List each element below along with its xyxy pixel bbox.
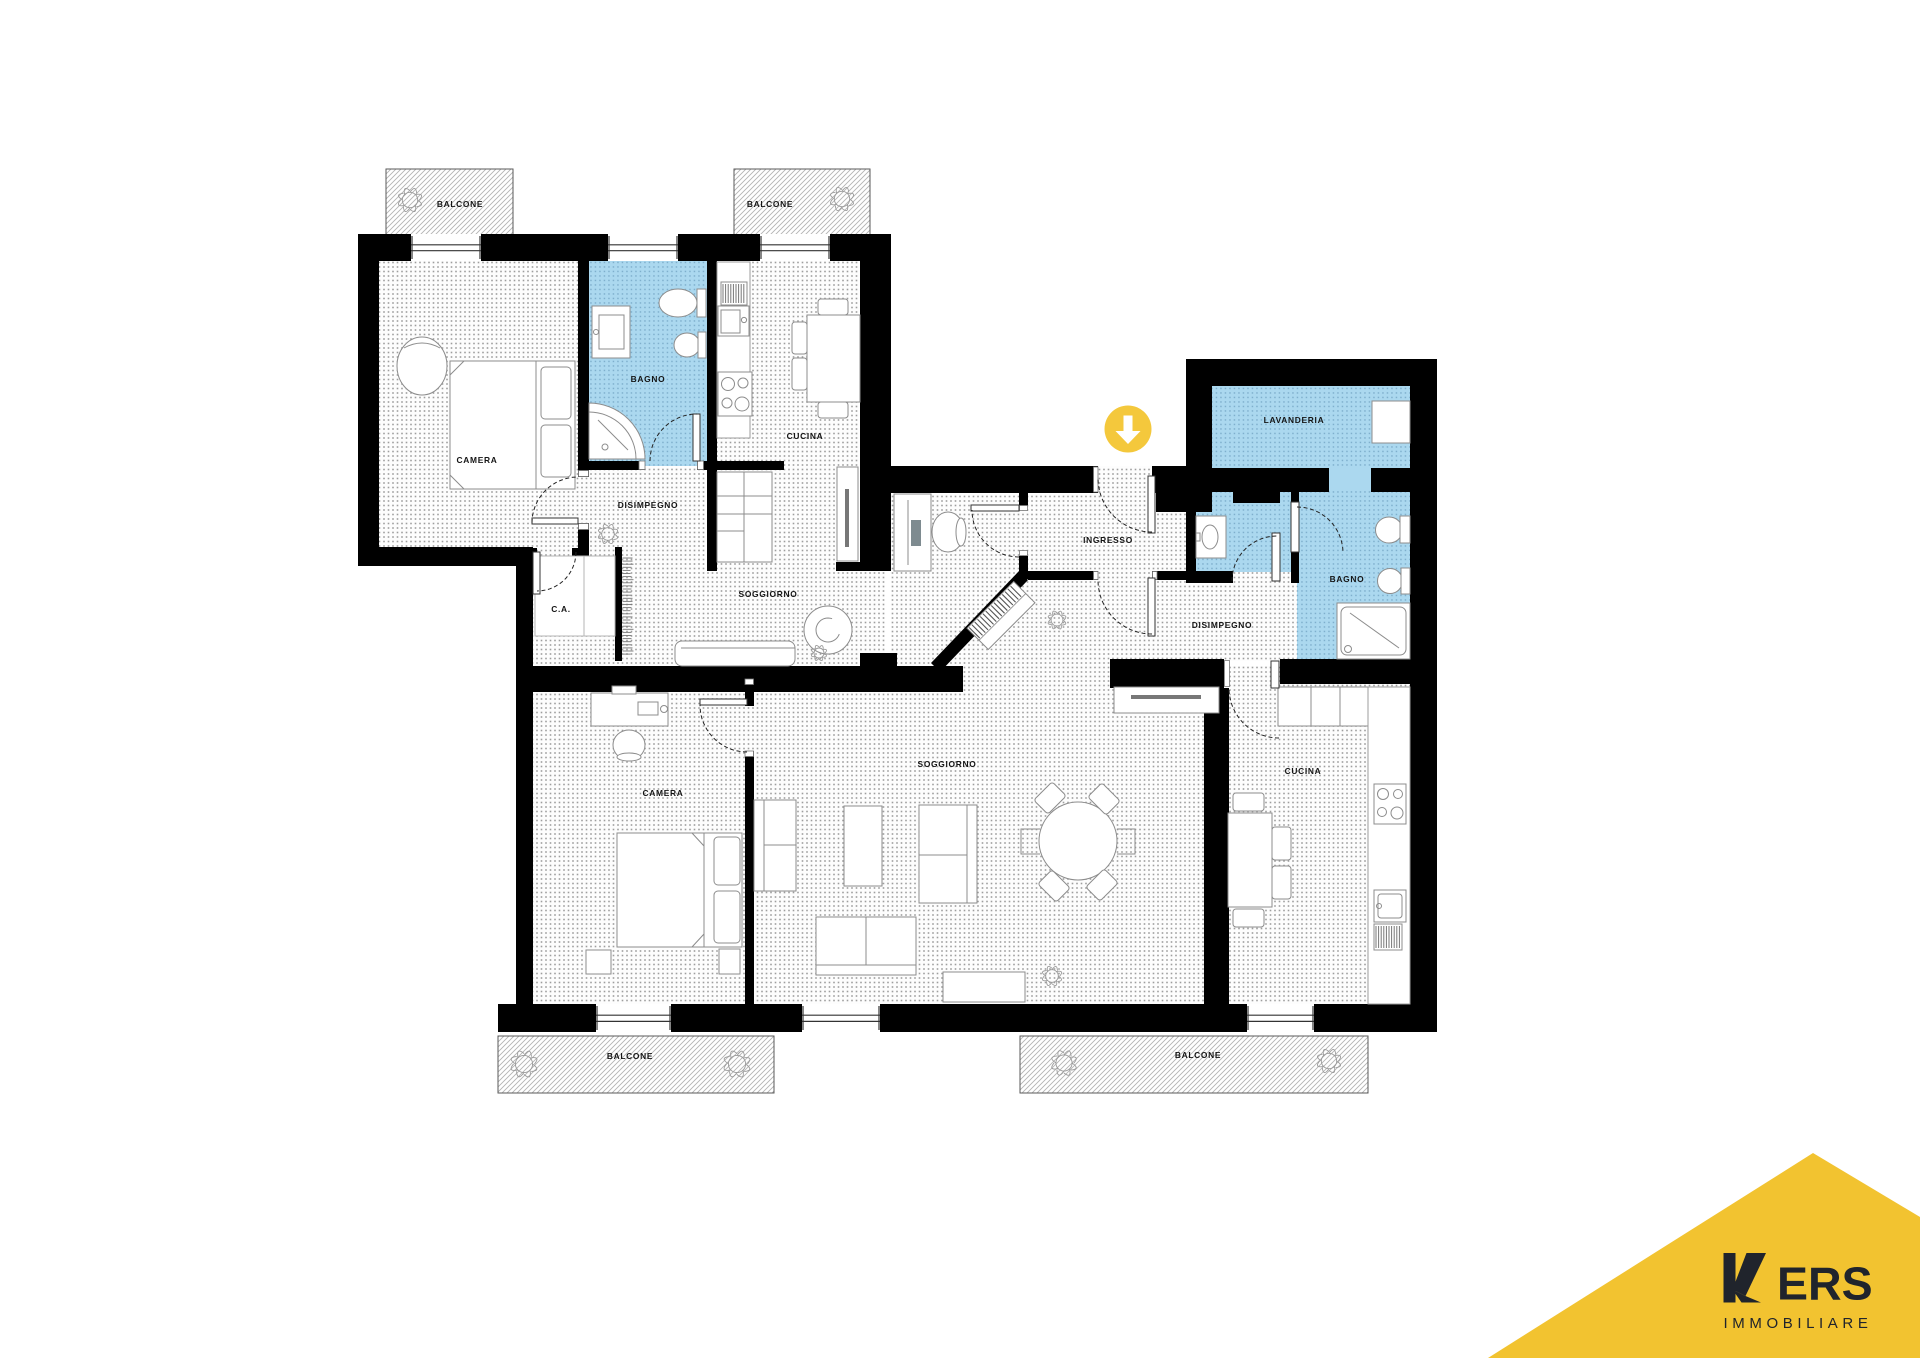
svg-text:CUCINA: CUCINA [787, 431, 824, 441]
svg-text:SOGGIORNO: SOGGIORNO [739, 589, 798, 599]
svg-text:DISIMPEGNO: DISIMPEGNO [618, 500, 679, 510]
svg-text:ERS: ERS [1777, 1258, 1873, 1310]
svg-text:BALCONE: BALCONE [747, 199, 793, 209]
svg-text:BAGNO: BAGNO [1330, 574, 1365, 584]
svg-text:INGRESSO: INGRESSO [1083, 535, 1133, 545]
svg-text:LAVANDERIA: LAVANDERIA [1264, 415, 1325, 425]
svg-text:IMMOBILIARE: IMMOBILIARE [1724, 1315, 1873, 1332]
svg-text:BALCONE: BALCONE [437, 199, 483, 209]
svg-text:BALCONE: BALCONE [607, 1051, 653, 1061]
svg-text:CAMERA: CAMERA [643, 788, 684, 798]
svg-text:DISIMPEGNO: DISIMPEGNO [1192, 620, 1253, 630]
svg-text:CUCINA: CUCINA [1285, 766, 1322, 776]
svg-text:CAMERA: CAMERA [457, 455, 498, 465]
svg-text:BAGNO: BAGNO [631, 374, 666, 384]
svg-text:BALCONE: BALCONE [1175, 1050, 1221, 1060]
svg-text:C.A.: C.A. [551, 604, 571, 614]
svg-text:SOGGIORNO: SOGGIORNO [918, 759, 977, 769]
